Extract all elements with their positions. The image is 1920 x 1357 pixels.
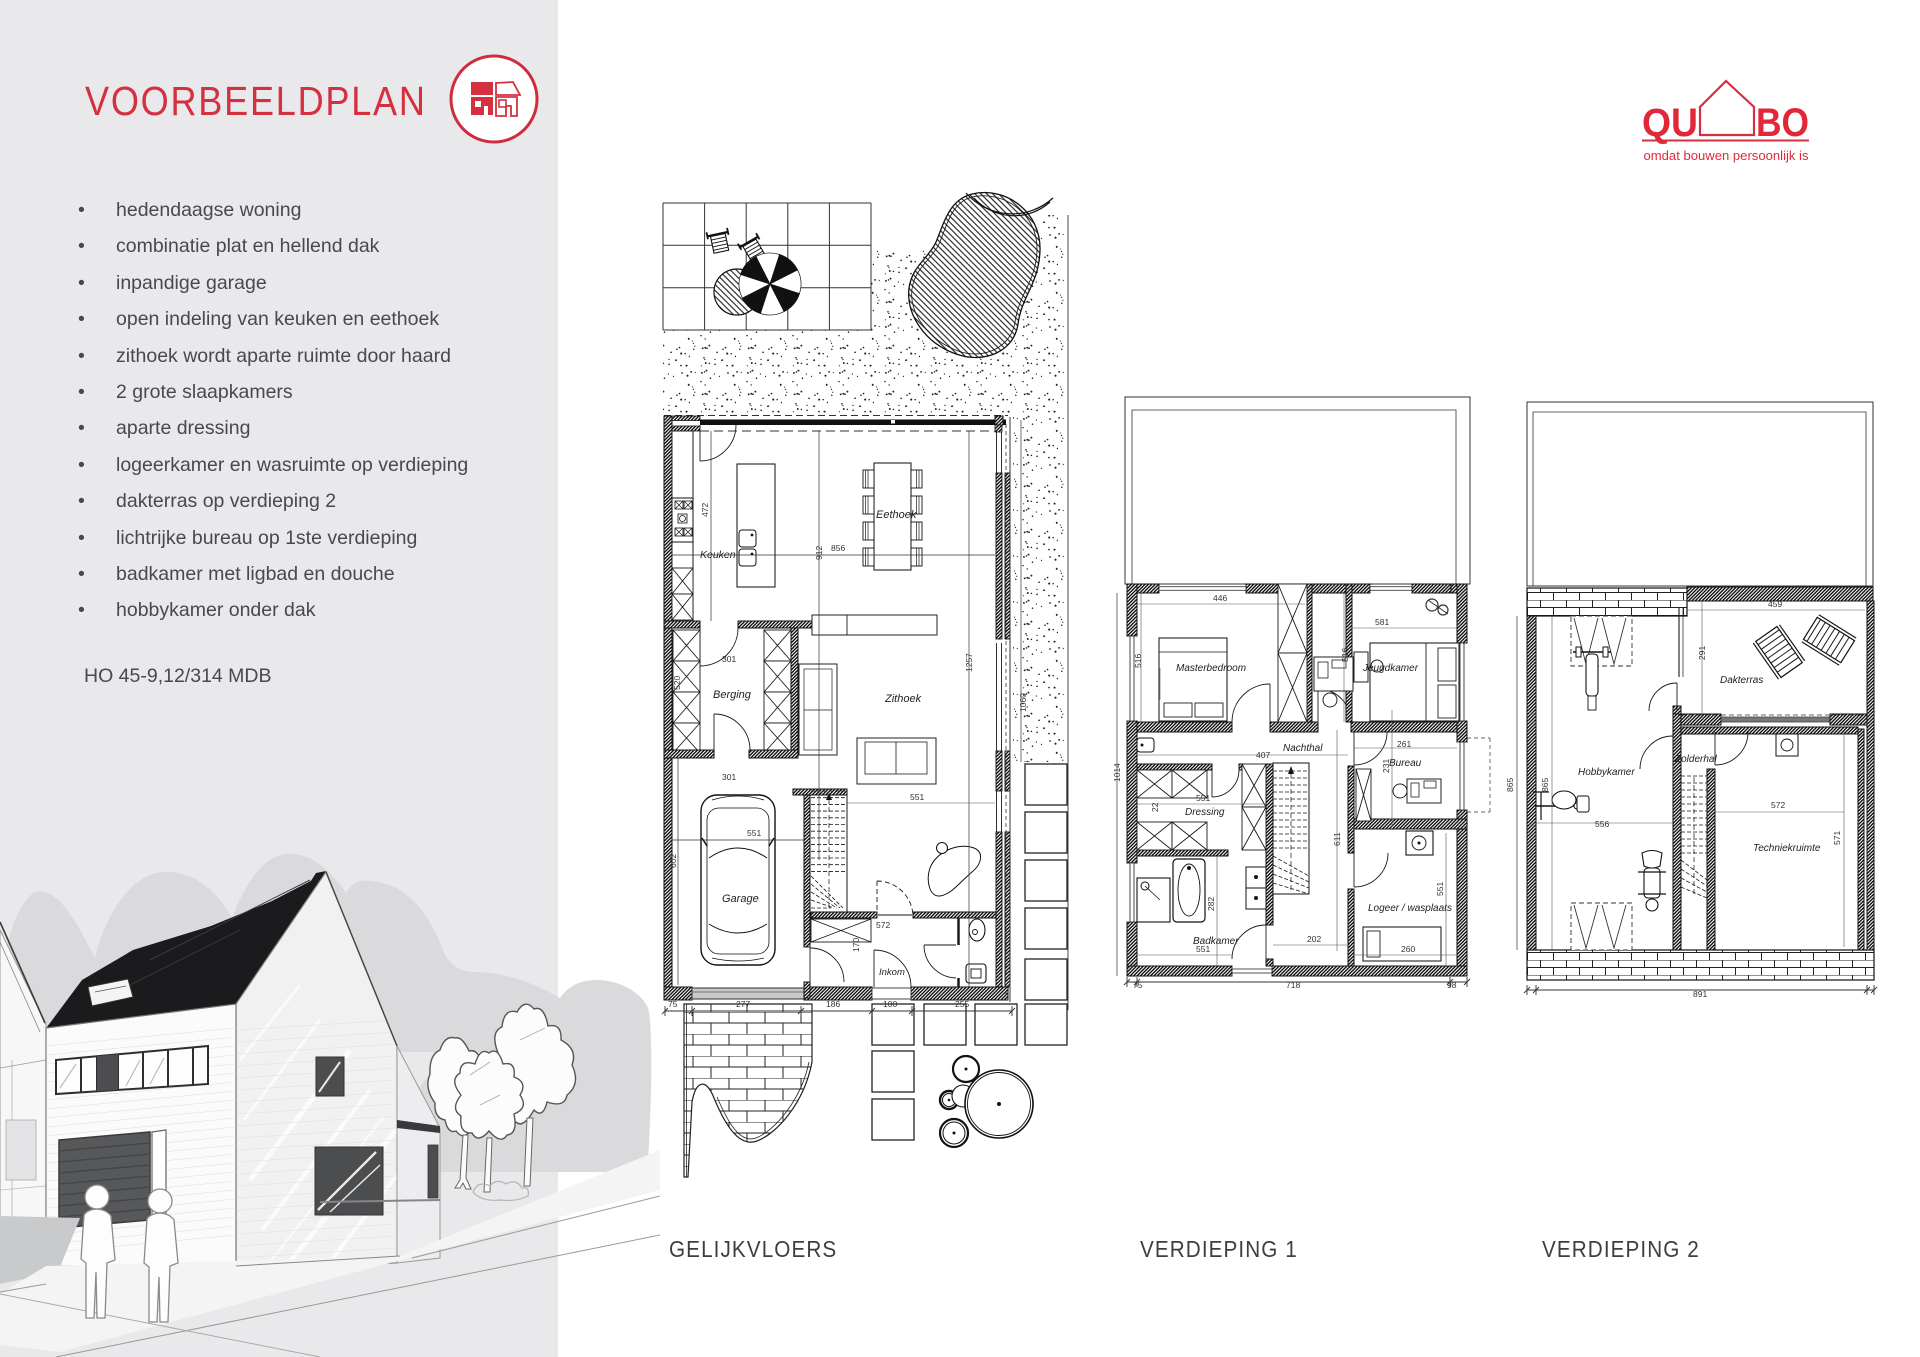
svg-text:186: 186 [826,999,840,1009]
svg-text:231: 231 [1381,759,1391,773]
svg-text:Nachthal: Nachthal [1283,743,1323,754]
svg-text:581: 581 [1375,617,1389,627]
svg-text:856: 856 [831,543,845,553]
svg-text:Hobbykamer: Hobbykamer [1578,767,1635,778]
svg-text:277: 277 [736,999,750,1009]
svg-text:551: 551 [747,828,761,838]
svg-text:98: 98 [1447,980,1457,990]
svg-text:170: 170 [851,938,861,952]
svg-text:255: 255 [955,999,969,1009]
svg-text:446: 446 [1213,593,1227,603]
svg-text:QU: QU [1642,101,1698,145]
svg-text:472: 472 [700,503,710,517]
svg-text:Bureau: Bureau [1389,758,1422,769]
svg-text:520: 520 [672,676,682,690]
svg-text:718: 718 [1286,980,1300,990]
svg-text:100: 100 [883,999,897,1009]
svg-text:459: 459 [1768,599,1782,609]
svg-text:571: 571 [1832,831,1842,845]
svg-text:Jeugdkamer: Jeugdkamer [1362,663,1419,674]
svg-text:912: 912 [814,546,824,560]
svg-text:1014: 1014 [1112,763,1122,782]
svg-text:611: 611 [1332,832,1342,846]
svg-text:602: 602 [668,854,678,868]
svg-text:572: 572 [876,920,890,930]
svg-text:1257: 1257 [964,653,974,672]
svg-text:282: 282 [1206,897,1216,911]
svg-text:omdat bouwen persoonlijk is: omdat bouwen persoonlijk is [1644,148,1809,163]
svg-text:75: 75 [1133,980,1143,990]
svg-text:301: 301 [722,654,736,664]
svg-text:Inkom: Inkom [879,967,905,978]
svg-text:260: 260 [1401,944,1415,954]
svg-text:Masterbedroom: Masterbedroom [1176,663,1246,674]
svg-text:Zithoek: Zithoek [884,693,922,705]
svg-text:291: 291 [1697,646,1707,660]
svg-text:Dressing: Dressing [1185,807,1225,818]
svg-text:261: 261 [1397,739,1411,749]
svg-text:Techniekruimte: Techniekruimte [1753,843,1821,854]
svg-text:891: 891 [1693,989,1707,999]
svg-text:22: 22 [1150,802,1160,812]
svg-text:551: 551 [1196,793,1210,803]
svg-text:Dakterras: Dakterras [1720,675,1763,686]
svg-text:865: 865 [1540,778,1550,792]
svg-text:Zolderhal: Zolderhal [1674,754,1717,765]
svg-text:Logeer / wasplaats: Logeer / wasplaats [1368,903,1452,914]
svg-text:202: 202 [1307,934,1321,944]
svg-text:556: 556 [1595,819,1609,829]
svg-text:Garage: Garage [722,893,759,905]
svg-text:865: 865 [1505,778,1515,792]
svg-text:516: 516 [1133,654,1143,668]
svg-text:516: 516 [1340,648,1350,662]
svg-text:572: 572 [1771,800,1785,810]
svg-text:Eethoek: Eethoek [876,509,917,521]
svg-text:551: 551 [1196,944,1210,954]
svg-text:551: 551 [910,792,924,802]
svg-text:1060: 1060 [1018,693,1028,712]
svg-text:BO: BO [1756,101,1809,145]
svg-text:75: 75 [668,999,678,1009]
svg-text:301: 301 [722,772,736,782]
svg-text:Berging: Berging [713,689,752,701]
svg-text:407: 407 [1256,750,1270,760]
svg-text:551: 551 [1435,882,1445,896]
